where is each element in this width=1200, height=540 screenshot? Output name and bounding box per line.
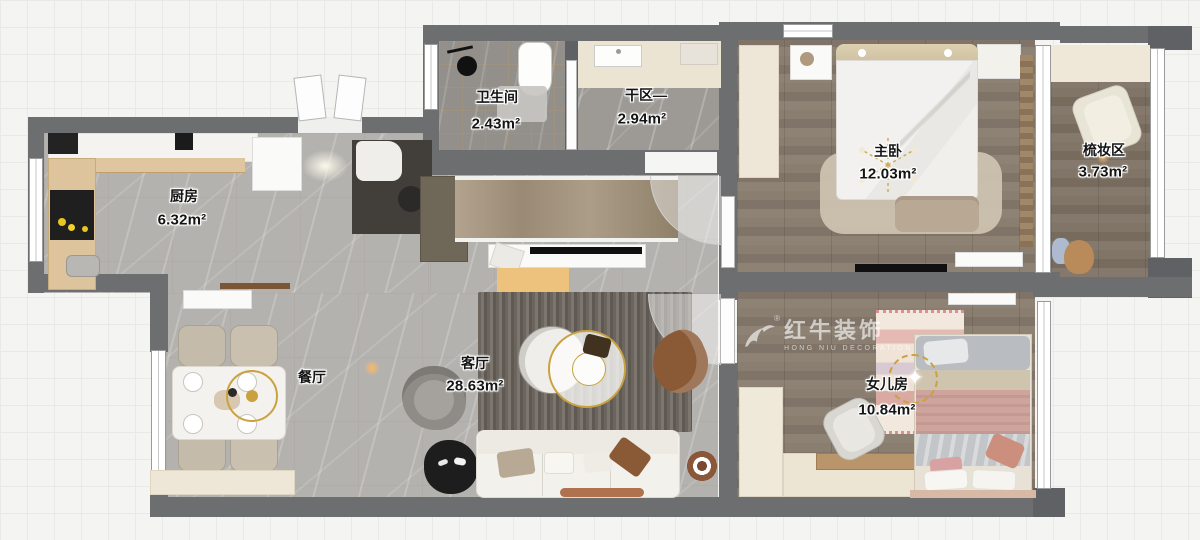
wall-kitchen-top-right (362, 117, 430, 133)
wall-bottom (150, 497, 1065, 517)
master-foot-blanket (895, 196, 979, 232)
entry-light (302, 150, 348, 182)
entry-door-leaf-right (333, 74, 366, 121)
kitchen-counter-strip (80, 158, 245, 173)
wall-bath-top (423, 25, 737, 41)
dining-chair-2 (230, 325, 278, 367)
master-bedroom-window (783, 24, 833, 38)
headboard-knob-1 (858, 49, 866, 57)
room-label-master-bedroom: 主卧 (874, 141, 902, 161)
dry-faucet (616, 49, 621, 54)
headboard-knob-2 (944, 49, 952, 57)
side-table-rings (684, 448, 720, 484)
lemon-2 (68, 224, 75, 231)
room-area-kitchen: 6.32m² (158, 212, 207, 229)
master-door-leaf (721, 196, 735, 268)
floor-plan: ✦ 卫生间 2.43m² 干区— 2.94m² 主卧 12.03m² 梳妆区 3… (0, 0, 1200, 540)
master-dressing-glass (1035, 45, 1051, 273)
kitchen-window (29, 158, 43, 262)
daughter-desk-top (816, 453, 922, 470)
lemon-1 (58, 218, 66, 226)
wall-lamp-1 (364, 360, 380, 376)
daughter-shelf (948, 293, 1016, 305)
room-label-daughter-room: 女儿房 (866, 374, 908, 394)
wall-living-daughter-lower (719, 363, 737, 497)
kitchen-sink (66, 255, 100, 277)
room-area-living-room: 28.63m² (446, 378, 503, 395)
bull-logo-icon: ® (742, 318, 778, 354)
wall-dressing-bottom (1033, 277, 1192, 297)
room-area-dry-area: 2.94m² (618, 111, 667, 128)
dining-sideboard-top (183, 290, 252, 309)
room-label-dining-room: 餐厅 (298, 367, 326, 387)
wall-daughter-corner-br (1033, 488, 1065, 517)
registered-mark: ® (774, 314, 780, 323)
room-area-master-bedroom: 12.03m² (859, 166, 916, 183)
nightstand-left-deco (800, 52, 814, 66)
beanbag (424, 440, 478, 494)
wall-dressing-corner-tr (1148, 26, 1192, 50)
room-label-dressing-area: 梳妆区 (1083, 140, 1125, 160)
pendant-black-dot (228, 388, 237, 397)
daughter-wardrobe (739, 387, 783, 497)
dining-sideboard-bottom (150, 470, 295, 495)
dressing-window (1150, 48, 1165, 258)
tv-cabinet (455, 176, 678, 242)
dry-towel (680, 43, 718, 65)
shower-head-icon (457, 56, 477, 76)
daughter-blanket-pink (916, 390, 1030, 434)
tv-screen (530, 247, 642, 254)
dressing-cabinet (1051, 45, 1150, 82)
wall-dining-left-upper (150, 290, 168, 352)
dining-chair-1 (178, 325, 226, 367)
teddy-bear (1064, 240, 1094, 274)
daughter-bed-footboard (910, 490, 1036, 498)
room-area-daughter-room: 10.84m² (858, 402, 915, 419)
nightstand-right (977, 44, 1021, 79)
wall-kitchen-top-left (28, 117, 298, 133)
daughter-door-leaf (720, 298, 735, 364)
dry-area-opening (645, 152, 717, 173)
daughter-pillow-white-2 (972, 469, 1017, 491)
master-curtain (1020, 55, 1033, 247)
pendant-gold-dot (246, 390, 258, 402)
brand-watermark: ® 红牛装饰 HONG NIU DECORATION (742, 318, 913, 354)
sofa-seam-1 (542, 454, 543, 496)
room-label-living-room: 客厅 (461, 353, 489, 373)
bathroom-window (424, 44, 438, 110)
daughter-pillow-white-1 (923, 468, 968, 491)
plate-1 (183, 372, 203, 392)
wall-master-daughter-divider (719, 272, 1060, 292)
daughter-window (1037, 301, 1051, 489)
dining-window (151, 350, 166, 472)
bathroom-door-leaf (566, 60, 577, 150)
cooktop (50, 190, 94, 240)
master-tv (855, 264, 947, 272)
lemon-3 (82, 226, 88, 232)
copper-tray (560, 488, 644, 497)
watermark-sub-text: HONG NIU DECORATION (784, 345, 913, 352)
plate-3 (183, 414, 203, 434)
shoe-cabinet (252, 137, 302, 191)
room-label-kitchen: 厨房 (170, 186, 198, 206)
master-tv-console (955, 252, 1023, 267)
kitchen-appliance (175, 133, 193, 150)
master-closet (739, 45, 779, 178)
room-label-dry-area: 干区— (625, 85, 667, 105)
room-area-dressing-area: 3.73m² (1079, 164, 1128, 181)
sofa-pillow-white (544, 452, 574, 474)
watermark-brand-text: 红牛装饰 (784, 320, 913, 342)
entry-door-leaf-left (293, 74, 326, 121)
wall-master-top (719, 22, 1060, 40)
room-area-bathroom: 2.43m² (472, 116, 521, 133)
entry-art (356, 141, 402, 181)
dining-art-strip (220, 283, 290, 289)
room-label-bathroom: 卫生间 (476, 87, 518, 107)
tv-floor-mat (497, 268, 569, 295)
sofa-pillow-taupe (496, 448, 535, 479)
range-hood (48, 133, 78, 154)
